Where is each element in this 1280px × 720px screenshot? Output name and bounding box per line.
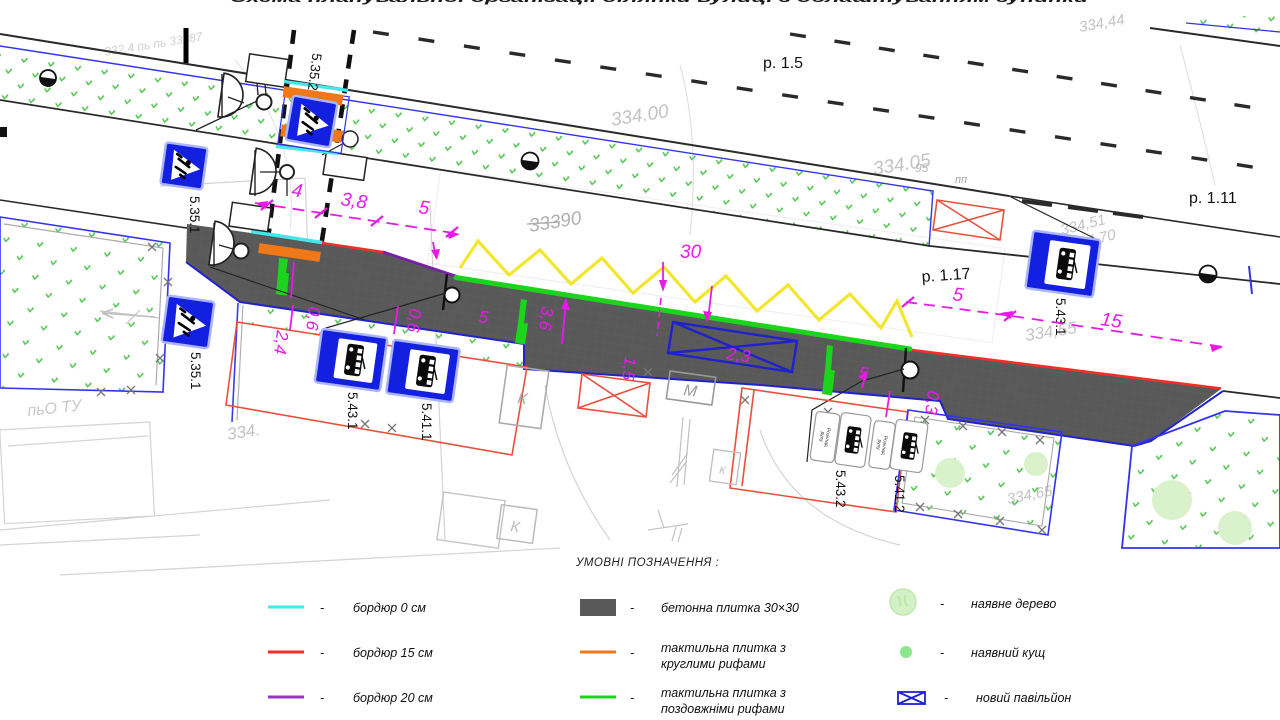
svg-text:-: - xyxy=(320,646,324,660)
svg-text:-: - xyxy=(320,691,324,705)
svg-text:бордюр 20 см: бордюр 20 см xyxy=(353,691,433,705)
svg-text:5.43.1: 5.43.1 xyxy=(345,392,360,430)
svg-text:5.43.2: 5.43.2 xyxy=(833,470,848,508)
svg-text:-: - xyxy=(320,601,324,615)
svg-text:3,8: 3,8 xyxy=(339,189,369,214)
svg-text:2,4: 2,4 xyxy=(270,329,292,356)
svg-text:1,5: 1,5 xyxy=(618,356,640,382)
svg-text:тактильна плитка з: тактильна плитка з xyxy=(661,686,786,700)
svg-text:бордюр 0 см: бордюр 0 см xyxy=(353,601,426,615)
svg-text:-: - xyxy=(940,597,944,611)
svg-text:p. 1.17: p. 1.17 xyxy=(921,266,971,286)
svg-text:наявне дерево: наявне дерево xyxy=(971,597,1056,611)
svg-text:бетонна плитка 30×30: бетонна плитка 30×30 xyxy=(661,601,799,615)
svg-text:наявний кущ: наявний кущ xyxy=(971,646,1045,660)
svg-text:новий павільйон: новий павільйон xyxy=(976,691,1071,705)
svg-text:-: - xyxy=(944,691,948,705)
svg-text:Схема планувальної організації: Схема планувальної організації ділянки в… xyxy=(230,0,1088,5)
svg-text:p. 1.5: p. 1.5 xyxy=(763,55,803,72)
svg-text:-: - xyxy=(630,691,634,705)
svg-text:поздовжніми рифами: поздовжніми рифами xyxy=(661,702,785,716)
svg-text:5.43.1: 5.43.1 xyxy=(1053,298,1068,336)
svg-text:0,3: 0,3 xyxy=(921,390,943,416)
svg-text:5.35.1: 5.35.1 xyxy=(188,352,203,390)
svg-text:p. 1.11: p. 1.11 xyxy=(1189,190,1237,207)
svg-text:круглими рифами: круглими рифами xyxy=(661,657,766,671)
svg-text:пп: пп xyxy=(955,174,967,186)
svg-text:0,6: 0,6 xyxy=(403,308,425,334)
svg-text:тактильна плитка з: тактильна плитка з xyxy=(661,641,786,655)
svg-text:15: 15 xyxy=(1099,309,1123,333)
svg-text:30: 30 xyxy=(680,242,702,263)
svg-text:УМОВНІ ПОЗНАЧЕННЯ :: УМОВНІ ПОЗНАЧЕННЯ : xyxy=(575,557,719,569)
svg-text:5.35.1: 5.35.1 xyxy=(187,196,202,234)
svg-text:0,6: 0,6 xyxy=(302,306,324,332)
svg-text:5.41.1: 5.41.1 xyxy=(419,403,434,441)
svg-text:5.41.2: 5.41.2 xyxy=(892,475,907,513)
svg-text:бордюр 15 см: бордюр 15 см xyxy=(353,646,433,660)
svg-text:-: - xyxy=(940,646,944,660)
svg-text:2,3: 2,3 xyxy=(724,344,752,366)
svg-text:3,6: 3,6 xyxy=(535,306,557,332)
svg-text:-: - xyxy=(630,646,634,660)
svg-text:95: 95 xyxy=(915,161,929,175)
svg-text:-: - xyxy=(630,601,634,615)
